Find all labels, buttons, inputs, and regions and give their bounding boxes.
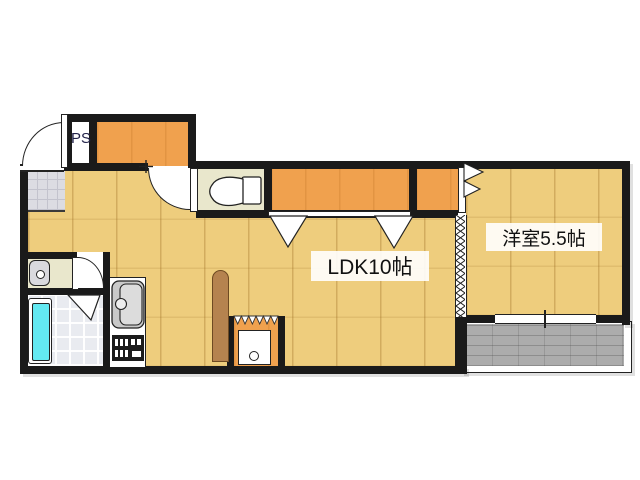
door-hinge-mark [138,159,154,174]
closet-door-triangle [373,215,416,250]
entrance-tile-floor [27,171,65,212]
hall-closet [271,168,411,212]
wall-right-outer [622,161,630,325]
kitchen-sink-icon [110,279,146,331]
closet-door-triangle [268,215,310,249]
floorplan: PS LDK10帖 洋室5.5帖 [0,0,640,480]
wall [64,114,196,122]
washbasin-icon [29,260,50,286]
wall [409,168,417,216]
window-center-tick [544,310,546,328]
counter-partition [212,270,229,362]
wall [277,316,285,368]
accordion-partition [455,215,467,317]
stove-icon [111,334,145,362]
entrance-door-leaf [61,114,68,168]
western-room-closet [416,168,458,212]
washing-machine-drain [249,351,259,361]
washer-accordion-zigzag [234,316,278,326]
bathtub-icon [32,303,50,361]
toilet-door-leaf [190,168,198,212]
wall [64,163,148,171]
wall-left-outer [20,171,28,374]
pipe-space-label: PS [69,130,93,147]
toilet-icon [205,172,265,210]
wall [455,314,467,374]
wall [103,252,110,374]
bathroom-door-triangle [66,294,102,322]
western-closet-door-triangles [463,161,487,199]
wall-bottom-outer [20,366,466,374]
entrance-door-arc [22,122,64,166]
western-room-label: 洋室5.5帖 [486,223,602,251]
ldk-label: LDK10帖 [311,251,429,281]
wall [264,168,272,216]
balcony [466,324,624,366]
wall [20,252,77,259]
